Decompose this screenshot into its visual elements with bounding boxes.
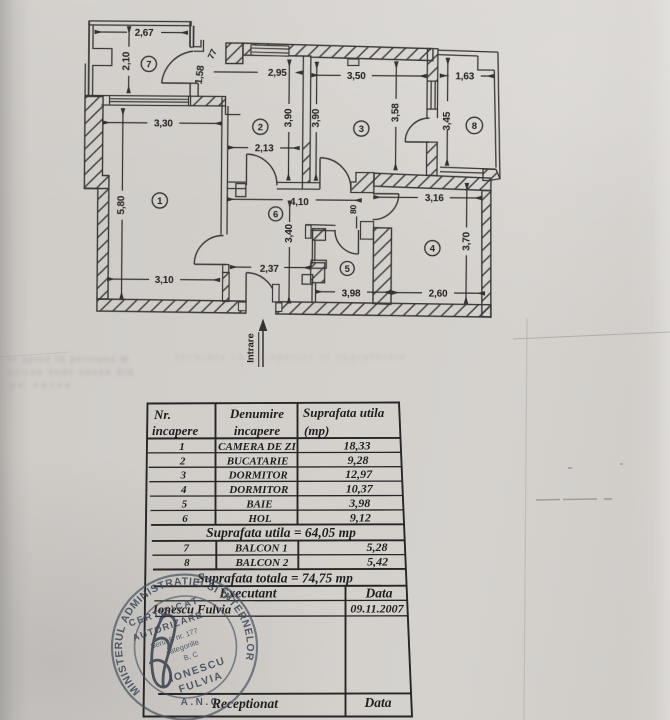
svg-text:3,98: 3,98 [348, 496, 370, 510]
svg-text:9,12: 9,12 [350, 510, 371, 524]
svg-text:1: 1 [157, 196, 163, 207]
svg-text:3: 3 [359, 124, 364, 135]
svg-text:8: 8 [184, 557, 190, 569]
svg-text:Nr.: Nr. [153, 407, 171, 422]
svg-text:BUCATARIE: BUCATARIE [226, 455, 289, 467]
svg-text:pe verso: pe verso [10, 380, 70, 391]
svg-text:3: 3 [179, 470, 186, 482]
svg-text:09.11.2007: 09.11.2007 [350, 602, 404, 616]
svg-text:6: 6 [182, 513, 188, 525]
svg-text:1,63: 1,63 [455, 71, 474, 82]
svg-text:2,13: 2,13 [255, 143, 274, 154]
svg-text:18,33: 18,33 [344, 438, 371, 452]
svg-text:Data: Data [364, 695, 392, 710]
svg-text:A.N.C: A.N.C [181, 697, 221, 708]
svg-text:3,58: 3,58 [390, 103, 401, 122]
svg-text:77: 77 [206, 47, 219, 60]
svg-text:5: 5 [345, 264, 351, 275]
svg-text:1,58: 1,58 [194, 64, 207, 85]
svg-text:2: 2 [179, 455, 186, 467]
svg-text:incapere: incapere [234, 423, 280, 438]
svg-text:7: 7 [184, 543, 190, 555]
svg-text:Data: Data [365, 585, 393, 600]
svg-text:2,67: 2,67 [135, 28, 154, 39]
svg-text:5,80: 5,80 [116, 195, 127, 214]
svg-text:HOL: HOL [247, 513, 272, 525]
svg-text:te apore in perioana m: te apore in perioana m [8, 354, 128, 365]
svg-text:4: 4 [180, 484, 187, 496]
svg-text:6: 6 [273, 209, 278, 220]
svg-text:9,28: 9,28 [348, 453, 369, 467]
svg-text:2,37: 2,37 [260, 264, 279, 275]
svg-text:Suprafata utila = 64,05 mp: Suprafata utila = 64,05 mp [206, 525, 356, 540]
svg-text:2: 2 [258, 122, 263, 133]
svg-text:incapere: incapere [152, 423, 198, 438]
svg-text:3,30: 3,30 [154, 118, 173, 129]
svg-text:2,60: 2,60 [429, 289, 448, 300]
svg-text:3,45: 3,45 [442, 111, 453, 130]
svg-text:3,70: 3,70 [461, 231, 472, 250]
svg-text:B, C: B, C [182, 649, 199, 662]
svg-text:80: 80 [348, 204, 358, 214]
svg-text:12,97: 12,97 [345, 467, 373, 481]
svg-text:3,90: 3,90 [283, 108, 294, 127]
svg-text:3,10: 3,10 [155, 275, 174, 286]
svg-text:5,28: 5,28 [367, 540, 388, 554]
svg-text:5: 5 [182, 499, 188, 511]
svg-text:2,95: 2,95 [268, 68, 287, 79]
svg-text:10,37: 10,37 [346, 482, 374, 496]
svg-text:CAMERA DE ZI: CAMERA DE ZI [218, 441, 296, 453]
svg-text:DORMITOR: DORMITOR [228, 484, 288, 496]
svg-text:2,10: 2,10 [121, 51, 132, 70]
svg-text:nr can vede anexe din: nr can vede anexe din [8, 367, 133, 378]
svg-text:8: 8 [472, 121, 477, 132]
svg-text:(mp): (mp) [304, 423, 329, 438]
svg-text:BAIE: BAIE [245, 499, 272, 511]
svg-text:3,40: 3,40 [284, 223, 295, 242]
svg-text:DORMITOR: DORMITOR [228, 470, 288, 482]
svg-text:1: 1 [179, 441, 185, 453]
svg-text:Suprafata utila: Suprafata utila [303, 405, 385, 420]
svg-text:3,98: 3,98 [342, 288, 361, 299]
svg-text:3,16: 3,16 [425, 193, 444, 204]
svg-text:5,42: 5,42 [367, 554, 388, 568]
svg-text:3,50: 3,50 [347, 71, 366, 82]
svg-text:4: 4 [430, 244, 436, 255]
svg-text:7: 7 [146, 59, 151, 70]
svg-text:BALCON 1: BALCON 1 [234, 543, 288, 555]
svg-text:BALCON 2: BALCON 2 [234, 557, 288, 569]
svg-text:locuinta cu incaperile si supr: locuinta cu incaperile si suprafetele [175, 352, 406, 363]
svg-text:3,90: 3,90 [311, 108, 322, 127]
svg-text:4,10: 4,10 [290, 197, 309, 208]
svg-text:Denumire: Denumire [229, 406, 284, 421]
